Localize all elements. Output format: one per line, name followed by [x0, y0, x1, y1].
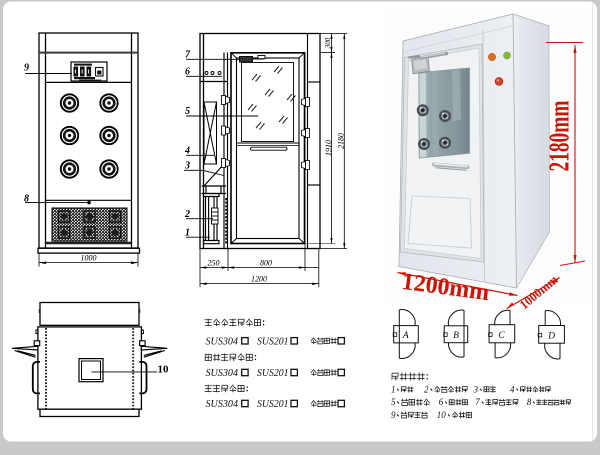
svg-text:5: 5 [391, 397, 396, 407]
svg-text:8: 8 [527, 397, 532, 407]
svg-text:2180: 2180 [337, 133, 346, 149]
svg-text:10: 10 [437, 410, 447, 420]
svg-text:D: D [547, 332, 555, 342]
svg-text:9: 9 [391, 410, 396, 420]
svg-text:SUS201: SUS201 [257, 336, 289, 347]
svg-text:SUS304: SUS304 [206, 336, 239, 347]
svg-text:7: 7 [475, 397, 480, 407]
svg-text:SUS201: SUS201 [257, 399, 289, 410]
svg-text:4: 4 [510, 384, 515, 394]
svg-text:1000: 1000 [81, 253, 97, 262]
svg-text:1910: 1910 [324, 140, 333, 156]
svg-text:2180mm: 2180mm [544, 100, 575, 171]
svg-text:1: 1 [391, 384, 396, 394]
svg-text:10: 10 [158, 364, 170, 376]
svg-text:250: 250 [208, 258, 220, 267]
svg-text:1200: 1200 [251, 274, 267, 283]
svg-text:800: 800 [260, 258, 272, 267]
svg-text:6: 6 [185, 67, 190, 78]
svg-text:SUS304: SUS304 [206, 368, 239, 379]
svg-text:3: 3 [473, 384, 479, 394]
svg-text:6: 6 [439, 397, 444, 407]
svg-text:2: 2 [424, 384, 429, 394]
svg-text:SUS201: SUS201 [257, 368, 289, 379]
svg-text:A: A [402, 331, 409, 341]
svg-text:9: 9 [24, 63, 29, 74]
svg-text:SUS304: SUS304 [206, 399, 239, 410]
svg-text:C: C [498, 331, 505, 341]
svg-text:5: 5 [185, 106, 190, 117]
svg-text:300: 300 [324, 37, 332, 49]
svg-text:B: B [453, 331, 459, 341]
